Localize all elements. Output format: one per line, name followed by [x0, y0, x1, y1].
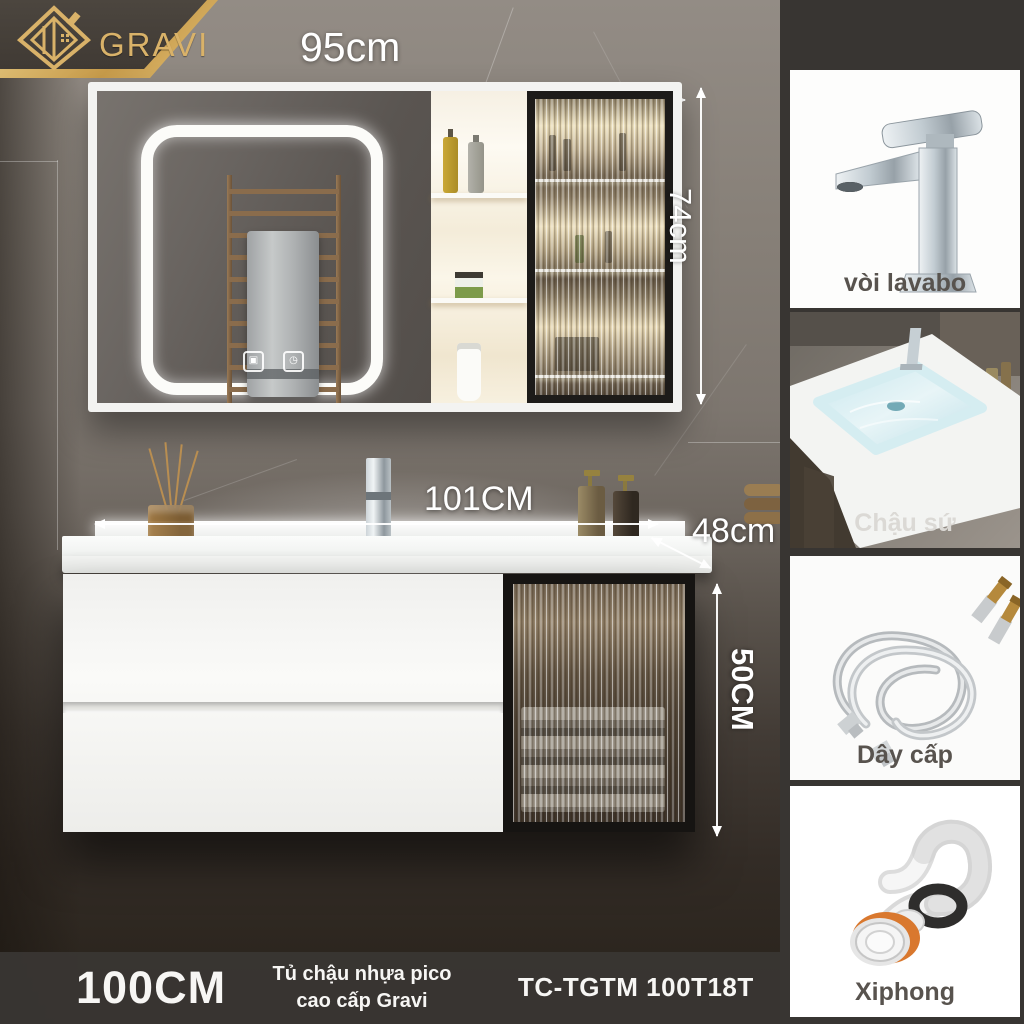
tile-seam — [57, 160, 58, 550]
countertop — [62, 536, 712, 557]
footer-size: 100CM — [76, 962, 226, 1014]
dim-cabinet-height-label: 50CM — [724, 648, 760, 731]
dim-mirror-width-label: 95cm — [300, 24, 400, 71]
footer-bar: 100CM Tủ chậu nhựa pico cao cấp Gravi TC… — [0, 952, 780, 1024]
countertop-edge — [62, 556, 712, 573]
dim-basin-width-arrow — [95, 523, 658, 525]
dim-basin-width-label: 101CM — [424, 480, 534, 519]
component-label-hose: Dây cấp — [790, 741, 1020, 770]
mirror-cabinet: ▣ ◷ — [88, 82, 682, 412]
bathroom-scene: GRAVI 95cm ▣ ◷ — [0, 0, 780, 1024]
led-mirror: ▣ ◷ — [97, 91, 431, 403]
component-label-faucet: vòi lavabo — [790, 269, 1020, 298]
shelf-board — [431, 298, 527, 303]
shelf-board — [431, 193, 527, 198]
fluted-glass-texture — [513, 584, 685, 822]
towel-roll — [744, 484, 784, 496]
component-card-siphon: Xiphong — [790, 786, 1020, 1017]
tile-seam — [688, 442, 780, 443]
gray-bottle — [468, 142, 484, 193]
components-sidebar: vòi lavabo — [780, 0, 1024, 1024]
product-ad-image: GRAVI 95cm ▣ ◷ — [0, 0, 1024, 1024]
component-label-basin: Chậu sứ — [790, 509, 1020, 538]
component-card-hose: Dây cấp — [790, 556, 1020, 780]
white-tube — [457, 343, 481, 401]
towel-roll — [744, 498, 784, 510]
footer-model-code: TC-TGTM 100T18T — [518, 972, 754, 1003]
footer-product-name: Tủ chậu nhựa pico cao cấp Gravi — [248, 961, 476, 1015]
gray-towel — [247, 231, 319, 397]
drawer-divider — [63, 702, 503, 713]
brand-name: GRAVI — [99, 26, 209, 64]
dim-cabinet-height-arrow — [716, 584, 718, 836]
fluted-glass-texture — [535, 99, 665, 395]
component-card-faucet: vòi lavabo — [790, 70, 1020, 308]
vanity-cabinet — [63, 574, 695, 832]
faucet — [366, 458, 391, 540]
fluted-glass-door-lower — [503, 574, 695, 832]
open-shelf-column — [431, 91, 527, 403]
dim-depth-label: 48cm — [692, 512, 775, 551]
yellow-bottle — [443, 137, 458, 193]
component-label-siphon: Xiphong — [790, 978, 1020, 1007]
tile-seam — [0, 161, 58, 162]
green-jar — [455, 272, 483, 298]
drawer-front-panels — [63, 574, 503, 832]
footer-product-line2: cao cấp Gravi — [248, 988, 476, 1015]
dim-mirror-height-label: 74cm — [662, 188, 698, 264]
house-logo-icon — [14, 4, 94, 72]
dim-mirror-height-arrow — [700, 88, 702, 404]
mirror-touch-power-icon: ◷ — [283, 351, 304, 372]
component-card-basin: Chậu sứ — [790, 312, 1020, 548]
footer-product-line1: Tủ chậu nhựa pico — [248, 961, 476, 988]
mirror-touch-defog-icon: ▣ — [243, 351, 264, 372]
fluted-glass-door-upper — [527, 91, 673, 403]
